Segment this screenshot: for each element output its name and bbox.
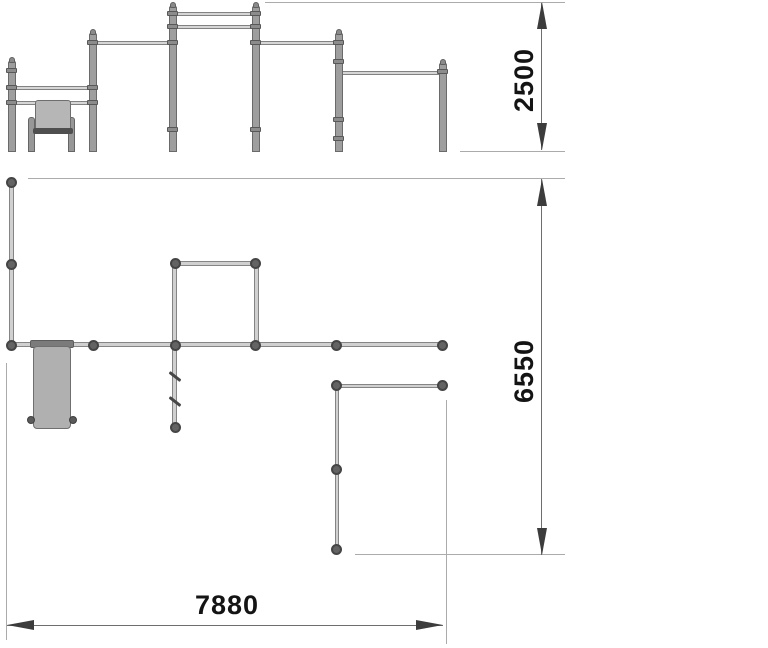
dimension-label-depth: 6550 bbox=[510, 311, 538, 431]
post-2-cap bbox=[90, 29, 96, 35]
dimension-line-depth bbox=[541, 179, 542, 555]
extension-line-top bbox=[265, 2, 565, 3]
post-6 bbox=[439, 63, 447, 152]
post-1-cap bbox=[9, 57, 15, 63]
post-1-collar bbox=[6, 68, 17, 73]
post-4-collar bbox=[250, 11, 261, 16]
post-3-collar bbox=[167, 24, 178, 29]
arrow-down-icon bbox=[537, 123, 547, 150]
parallel-bar-upper bbox=[15, 86, 90, 90]
extension-line-ground bbox=[460, 151, 565, 152]
post-2-collar bbox=[87, 40, 98, 45]
post-node bbox=[6, 340, 17, 351]
post-node bbox=[6, 259, 17, 270]
post-1-collar bbox=[6, 100, 17, 105]
post-2-collar bbox=[87, 85, 98, 90]
post-node bbox=[88, 340, 99, 351]
dimension-line-width bbox=[7, 625, 443, 626]
post-1 bbox=[8, 61, 16, 152]
post-6-cap bbox=[440, 59, 446, 65]
post-4-cap bbox=[253, 2, 259, 8]
post-5-collar bbox=[333, 40, 344, 45]
post-node bbox=[170, 258, 181, 269]
post-node bbox=[250, 258, 261, 269]
post-2-collar bbox=[87, 100, 98, 105]
plan-bench-leg-node bbox=[27, 416, 35, 424]
drawing-canvas: 2500 bbox=[0, 0, 768, 648]
post-5-collar bbox=[333, 117, 344, 122]
extension-line-left bbox=[6, 363, 7, 640]
dimension-label-height: 2500 bbox=[510, 20, 538, 140]
low-bar-right bbox=[342, 71, 440, 75]
post-3-collar bbox=[167, 11, 178, 16]
arrow-left-icon bbox=[7, 620, 34, 630]
post-5-collar bbox=[333, 136, 344, 141]
plan-square-top-rail bbox=[173, 261, 259, 266]
post-node bbox=[331, 464, 342, 475]
post-node bbox=[6, 177, 17, 188]
post-3-collar bbox=[167, 127, 178, 132]
plan-l-top-rail bbox=[335, 384, 445, 388]
plan-ladder-rail bbox=[172, 345, 177, 430]
post-4-collar bbox=[250, 127, 261, 132]
extension-line-plan-top bbox=[28, 178, 565, 179]
post-node bbox=[437, 380, 448, 391]
bench-leg-left bbox=[28, 117, 35, 152]
post-2 bbox=[89, 33, 97, 152]
post-3-collar bbox=[167, 40, 178, 45]
post-node bbox=[331, 380, 342, 391]
dimension-label-width: 7880 bbox=[167, 591, 287, 619]
pullup-bar-right bbox=[259, 41, 336, 45]
post-3-cap bbox=[170, 2, 176, 8]
arrow-right-icon bbox=[416, 620, 443, 630]
pullup-bar-left bbox=[96, 41, 171, 45]
plan-square-left-rail bbox=[172, 262, 177, 347]
post-6-collar bbox=[437, 69, 448, 74]
arrow-up-icon bbox=[537, 2, 547, 29]
post-node bbox=[250, 340, 261, 351]
post-4-collar bbox=[250, 40, 261, 45]
post-4-collar bbox=[250, 24, 261, 29]
post-1-collar bbox=[6, 85, 17, 90]
high-bar-top bbox=[176, 12, 253, 16]
arrow-up-icon bbox=[537, 179, 547, 206]
plan-bench-leg-node bbox=[69, 416, 77, 424]
arrow-down-icon bbox=[537, 528, 547, 555]
post-node bbox=[170, 340, 181, 351]
post-node bbox=[331, 340, 342, 351]
high-bar-second bbox=[176, 25, 253, 29]
post-5-collar bbox=[333, 59, 344, 64]
post-node bbox=[331, 544, 342, 555]
bench-frame-bar bbox=[33, 128, 73, 134]
post-5-cap bbox=[336, 29, 342, 35]
extension-line-right bbox=[446, 400, 447, 644]
plan-square-right-rail bbox=[254, 262, 259, 347]
plan-bench-board bbox=[33, 346, 71, 429]
post-5 bbox=[335, 33, 343, 152]
post-node bbox=[170, 422, 181, 433]
plan-main-rail bbox=[9, 342, 444, 347]
post-node bbox=[437, 340, 448, 351]
extension-line-plan-bottom bbox=[355, 554, 565, 555]
